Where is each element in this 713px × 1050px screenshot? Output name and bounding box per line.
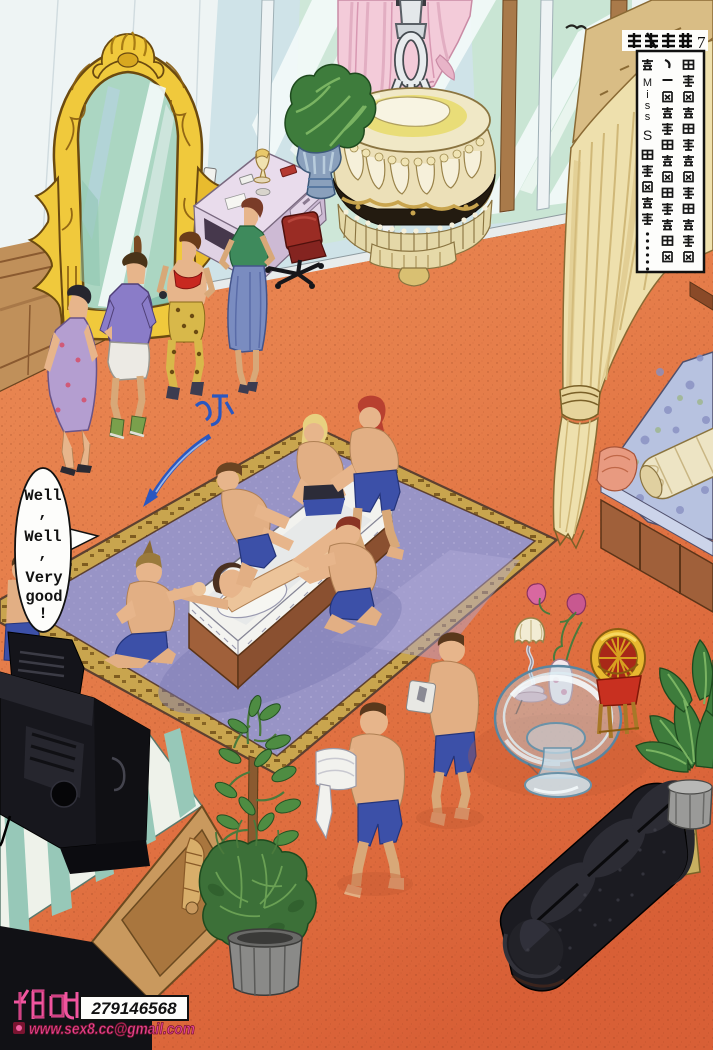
svg-text:M: M <box>643 77 652 89</box>
svg-text:S: S <box>643 127 652 143</box>
svg-text:Well: Well <box>24 487 61 505</box>
svg-text:,: , <box>38 545 47 563</box>
svg-text:279146568: 279146568 <box>90 999 177 1018</box>
svg-text:!: ! <box>38 605 47 623</box>
svg-text:s: s <box>645 111 651 123</box>
svg-text:,: , <box>38 504 47 522</box>
svg-text:good: good <box>25 588 62 606</box>
svg-text:www.sex8.cc@gmail.com: www.sex8.cc@gmail.com <box>29 1021 195 1038</box>
svg-text:Well: Well <box>24 528 61 546</box>
svg-text:7: 7 <box>697 33 706 52</box>
svg-text:Very: Very <box>25 569 62 587</box>
